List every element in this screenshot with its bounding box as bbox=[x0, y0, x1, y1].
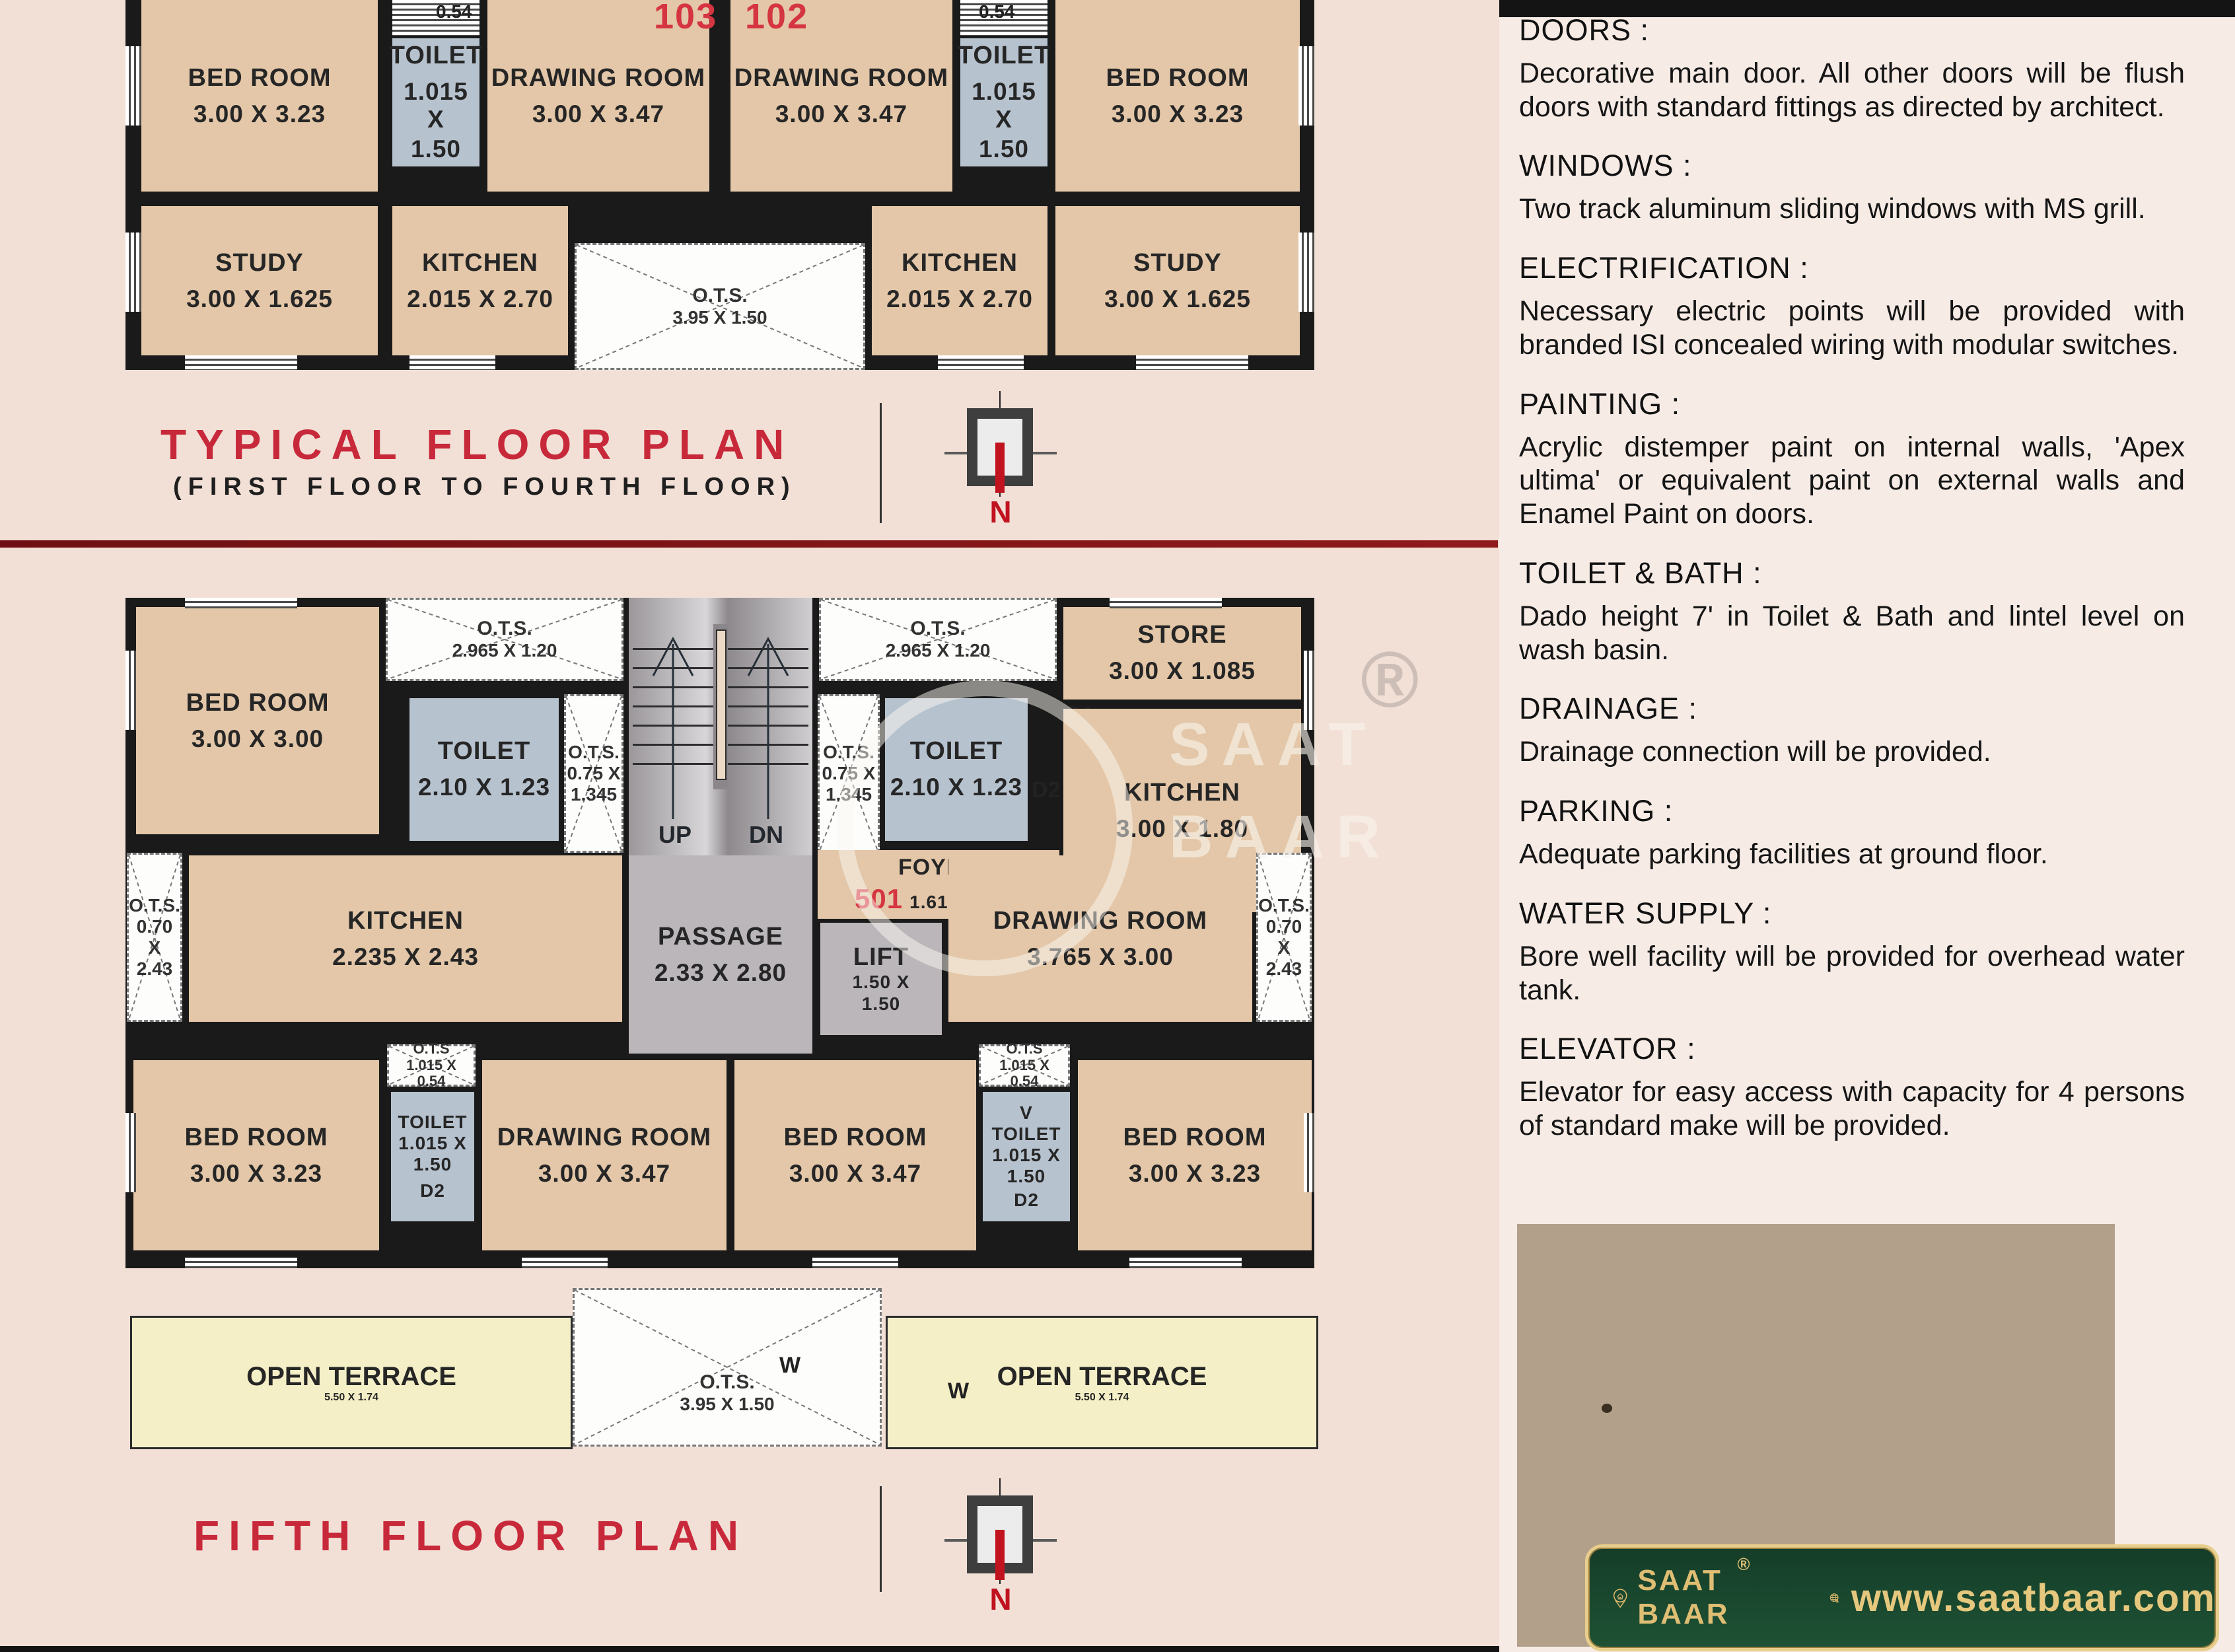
room-dims: 3.765 X 3.00 bbox=[1027, 943, 1174, 971]
room-drawing-mid: DRAWING ROOM 3.765 X 3.00 bbox=[948, 855, 1252, 1022]
room-dims: 2.43 bbox=[1266, 958, 1302, 980]
room-toilet-right: TOILET 1.015 X 1.50 bbox=[960, 38, 1047, 166]
room-dims: 1.50 X bbox=[853, 972, 910, 993]
room-label: O.T.S. bbox=[568, 742, 620, 763]
room-dims: 3.00 X 1.085 bbox=[1109, 657, 1256, 686]
room-label: TOILET bbox=[910, 737, 1003, 766]
room-dims: 0.75 X bbox=[822, 763, 876, 784]
unit-number-103: 103 bbox=[654, 0, 717, 37]
room-label: KITCHEN bbox=[902, 249, 1018, 277]
room-label: LIFT bbox=[853, 943, 909, 972]
room-label: DRAWING ROOM bbox=[491, 64, 705, 92]
spec-body: Drainage connection will be provided. bbox=[1519, 735, 2185, 769]
unit-number-501: 501 bbox=[855, 883, 903, 915]
room-dims: 1.50 bbox=[411, 135, 461, 164]
room-dims: 5.50 X 1.74 bbox=[324, 1392, 378, 1404]
window-mark bbox=[812, 1258, 898, 1268]
room-dims: 3.00 X 1.625 bbox=[1104, 285, 1251, 313]
divider-line bbox=[880, 403, 882, 523]
north-compass-icon: N bbox=[944, 391, 1057, 533]
window-w-label: W bbox=[948, 1379, 969, 1404]
room-label: O.T.S bbox=[1006, 1041, 1042, 1058]
spec-body: Necessary electric points will be provid… bbox=[1519, 295, 2185, 361]
room-label: DRAWING ROOM bbox=[993, 907, 1207, 935]
room-label: O.T.S. bbox=[699, 1371, 754, 1394]
ots-bottom: W W O.T.S. 3.95 X 1.50 bbox=[573, 1288, 882, 1447]
room-toilet-mid-right: TOILET 2.10 X 1.23 bbox=[885, 698, 1028, 841]
room-kitchen-left: KITCHEN 2.015 X 2.70 bbox=[392, 206, 568, 355]
room-dims: 2.10 X 1.23 bbox=[890, 773, 1022, 802]
spec-heading: DOORS : bbox=[1519, 13, 2185, 48]
room-label: DRAWING ROOM bbox=[734, 64, 948, 92]
room-bedroom-right: BED ROOM 3.00 X 3.23 bbox=[1055, 0, 1300, 192]
spec-section-electrification: ELECTRIFICATION : Necessary electric poi… bbox=[1519, 251, 2185, 361]
spec-section-elevator: ELEVATOR : Elevator for easy access with… bbox=[1519, 1032, 2185, 1142]
spec-heading: TOILET & BATH : bbox=[1519, 556, 2185, 591]
room-kitchen-right: KITCHEN 2.015 X 2.70 bbox=[872, 206, 1047, 355]
room-dims: 2.43 bbox=[137, 958, 173, 980]
spec-section-water-supply: WATER SUPPLY : Bore well facility will b… bbox=[1519, 896, 2185, 1007]
spec-heading: ELEVATOR : bbox=[1519, 1032, 2185, 1066]
spec-body: Bore well facility will be provided for … bbox=[1519, 940, 2185, 1007]
room-label: O.T.S bbox=[413, 1041, 449, 1058]
spec-heading: PAINTING : bbox=[1519, 387, 2185, 421]
window-mark bbox=[1298, 46, 1314, 126]
room-dims: 3.00 X 1.80 bbox=[1116, 815, 1248, 843]
room-passage: PASSAGE 2.33 X 2.80 bbox=[629, 855, 812, 1054]
room-dims: 1.015 X bbox=[398, 1133, 467, 1154]
globe-icon bbox=[1829, 1575, 1839, 1621]
window-mark bbox=[185, 355, 297, 370]
room-label: O.T.S. bbox=[1258, 895, 1310, 916]
room-dims: 3.95 X 1.50 bbox=[672, 307, 767, 328]
room-bedroom-bottom-left: BED ROOM 3.00 X 3.23 bbox=[133, 1060, 379, 1250]
website-url: www.saatbaar.com bbox=[1851, 1576, 2216, 1620]
room-toilet-left: TOILET 1.015 X 1.50 bbox=[392, 38, 479, 166]
spec-body: Acrylic distemper paint on internal wall… bbox=[1519, 431, 2185, 531]
room-bedroom-bottom-mid: BED ROOM 3.00 X 3.47 bbox=[734, 1060, 976, 1250]
room-dims: 2.015 X 2.70 bbox=[886, 285, 1033, 313]
room-kitchen-left: KITCHEN 2.235 X 2.43 bbox=[189, 855, 622, 1022]
ots-mid-right: O.T.S. 0.75 X 1.345 bbox=[818, 694, 880, 853]
ots-small-right: O.T.S 1.015 X 0.54 bbox=[979, 1044, 1070, 1087]
room-store: STORE 3.00 X 1.085 bbox=[1063, 607, 1301, 700]
room-dims: 2.965 X 1.20 bbox=[886, 640, 991, 661]
room-label: PASSAGE bbox=[658, 923, 783, 951]
room-dims: 0.54 bbox=[1011, 1073, 1039, 1090]
window-mark bbox=[125, 233, 141, 312]
spec-section-painting: PAINTING : Acrylic distemper paint on in… bbox=[1519, 387, 2185, 531]
room-dims: 3.00 X 3.23 bbox=[190, 1160, 322, 1188]
window-mark bbox=[1129, 1258, 1242, 1268]
room-dims: 2.33 X 2.80 bbox=[655, 959, 787, 987]
ots-far-right: O.T.S. 0.70 X 2.43 bbox=[1256, 853, 1312, 1022]
room-label: O.T.S. bbox=[129, 895, 180, 916]
staircase: UP DN bbox=[629, 598, 812, 855]
room-dims: 1.50 bbox=[413, 1154, 452, 1175]
brand-banner: SAAT® BAAR www.saatbaar.com bbox=[1585, 1544, 2219, 1651]
door-label-d2: D2 bbox=[420, 1180, 445, 1202]
compass-n-label: N bbox=[944, 1581, 1057, 1617]
room-label: O.T.S. bbox=[823, 742, 874, 763]
compass-needle bbox=[995, 1530, 1005, 1580]
room-dims: 2.10 X 1.23 bbox=[418, 773, 550, 802]
registered-icon: ® bbox=[1737, 1555, 1752, 1575]
spec-heading: DRAINAGE : bbox=[1519, 692, 2185, 726]
spec-body: Dado height 7' in Toilet & Bath and lint… bbox=[1519, 600, 2185, 666]
spec-section-drainage: DRAINAGE : Drainage connection will be p… bbox=[1519, 692, 2185, 769]
room-dims: 1.015 X bbox=[999, 1058, 1049, 1074]
room-toilet-bottom-right: V TOILET 1.015 X 1.50 D2 bbox=[983, 1092, 1070, 1221]
room-dims: 0.70 X bbox=[1258, 916, 1310, 958]
stair-arrows-icon bbox=[629, 598, 812, 855]
room-dims: 1.345 bbox=[826, 784, 872, 805]
room-dims: 3.00 X 3.23 bbox=[1112, 100, 1244, 128]
room-study-left: STUDY 3.00 X 1.625 bbox=[141, 206, 378, 355]
spec-section-doors: DOORS : Decorative main door. All other … bbox=[1519, 13, 2185, 124]
spec-section-toilet-bath: TOILET & BATH : Dado height 7' in Toilet… bbox=[1519, 556, 2185, 666]
room-label: O.T.S. bbox=[477, 618, 532, 640]
ots-top-right: O.T.S. 2.965 X 1.20 bbox=[819, 598, 1057, 681]
room-dims: 1.015 X bbox=[992, 1145, 1061, 1166]
room-dims: 1.015 X bbox=[392, 78, 479, 134]
location-pin-house-icon bbox=[1612, 1554, 1628, 1641]
room-dims: 1.50 bbox=[979, 135, 1029, 164]
room-dims: 1.015 X bbox=[406, 1058, 456, 1074]
room-dims: 2.965 X 1.20 bbox=[452, 640, 557, 661]
room-bedroom-top: BED ROOM 3.00 X 3.00 bbox=[136, 607, 379, 834]
room-label: BED ROOM bbox=[186, 689, 330, 717]
room-label: BED ROOM bbox=[188, 64, 332, 92]
room-label: TOILET bbox=[991, 1124, 1061, 1145]
terrace-row: OPEN TERRACE 5.50 X 1.74 W W O.T.S. 3.95… bbox=[129, 1288, 1314, 1447]
brochure-page: BED ROOM 3.00 X 3.23 0.54 TOILET 1.015 X… bbox=[0, 0, 2235, 1652]
room-dims: 1.015 X bbox=[960, 78, 1047, 134]
ots-mid-left: O.T.S. 0.75 X 1.345 bbox=[564, 694, 623, 853]
window-mark bbox=[938, 355, 1024, 370]
room-toilet-mid-left: TOILET 2.10 X 1.23 bbox=[409, 698, 559, 841]
room-bedroom-left: BED ROOM 3.00 X 3.23 bbox=[141, 0, 378, 192]
room-dims: 3.00 X 3.00 bbox=[192, 725, 324, 753]
room-label: TOILET bbox=[398, 1112, 467, 1133]
spec-body: Decorative main door. All other doors wi… bbox=[1519, 57, 2185, 124]
ots-center: O.T.S. 3.95 X 1.50 bbox=[575, 243, 865, 370]
spec-heading: ELECTRIFICATION : bbox=[1519, 251, 2185, 285]
spec-list: DOORS : Decorative main door. All other … bbox=[1519, 9, 2185, 1143]
room-dims: 0.70 X bbox=[129, 916, 180, 958]
ots-dim-partial: 0.54 bbox=[436, 1, 472, 22]
room-label: BED ROOM bbox=[185, 1124, 328, 1152]
brand-name: SAAT® BAAR bbox=[1637, 1564, 1729, 1631]
room-dims: 2.235 X 2.43 bbox=[332, 943, 479, 971]
room-dims: 3.00 X 3.47 bbox=[775, 100, 907, 128]
window-mark bbox=[185, 598, 297, 608]
room-bedroom-bottom-right: BED ROOM 3.00 X 3.23 bbox=[1078, 1060, 1312, 1250]
room-label: STORE bbox=[1137, 621, 1226, 649]
room-label: TOILET bbox=[390, 42, 482, 70]
spec-body: Elevator for easy access with capacity f… bbox=[1519, 1075, 2185, 1142]
window-mark bbox=[1136, 355, 1248, 370]
window-mark bbox=[1304, 651, 1314, 730]
spec-body: Two track aluminum sliding windows with … bbox=[1519, 192, 2185, 226]
spec-heading: WINDOWS : bbox=[1519, 149, 2185, 183]
ots-far-left: O.T.S. 0.70 X 2.43 bbox=[127, 853, 182, 1022]
room-dims: 3.00 X 3.23 bbox=[194, 100, 326, 128]
brand-line1: SAAT bbox=[1637, 1564, 1722, 1597]
room-toilet-bottom-left: TOILET 1.015 X 1.50 D2 bbox=[391, 1092, 474, 1221]
room-dims: 3.00 X 3.47 bbox=[789, 1160, 921, 1188]
room-study-right: STUDY 3.00 X 1.625 bbox=[1055, 206, 1300, 355]
room-label: O.T.S. bbox=[692, 285, 747, 307]
room-label: STUDY bbox=[1133, 249, 1222, 277]
room-dims: 5.50 X 1.74 bbox=[1075, 1392, 1129, 1404]
room-label: TOILET bbox=[958, 42, 1050, 70]
compass-n-label: N bbox=[944, 494, 1057, 530]
room-dims: 1.50 bbox=[1007, 1166, 1046, 1187]
room-label: KITCHEN bbox=[1124, 779, 1240, 807]
room-dims: 3.00 X 3.47 bbox=[532, 100, 664, 128]
window-mark bbox=[1304, 1113, 1314, 1192]
vent-label: V bbox=[1020, 1102, 1033, 1124]
ots-dim-partial: 0.54 bbox=[979, 1, 1015, 22]
bottom-edge-strip bbox=[0, 1646, 1499, 1652]
fifth-floor-plan: BED ROOM 3.00 X 3.00 O.T.S. 2.965 X 1.20… bbox=[125, 598, 1314, 1268]
unit-number-102: 102 bbox=[745, 0, 808, 37]
ots-cross-icon bbox=[575, 1290, 880, 1445]
divider-line bbox=[880, 1486, 882, 1592]
room-label: OPEN TERRACE bbox=[246, 1362, 456, 1392]
room-lift: LIFT 1.50 X 1.50 bbox=[820, 923, 942, 1035]
compass-needle bbox=[995, 443, 1005, 493]
door-label-d2: D2 bbox=[1014, 1190, 1039, 1211]
room-label: TOILET bbox=[438, 737, 530, 766]
specifications-panel: DOORS : Decorative main door. All other … bbox=[1499, 0, 2235, 1652]
room-dims: 3.00 X 3.23 bbox=[1129, 1160, 1261, 1188]
ots-small-left: O.T.S 1.015 X 0.54 bbox=[387, 1044, 476, 1087]
ots-top-left: O.T.S. 2.965 X 1.20 bbox=[386, 598, 623, 681]
room-drawing-bottom: DRAWING ROOM 3.00 X 3.47 bbox=[482, 1060, 727, 1250]
open-terrace-left: OPEN TERRACE 5.50 X 1.74 bbox=[130, 1316, 573, 1449]
room-dims: 3.95 X 1.50 bbox=[680, 1394, 774, 1415]
room-dims: 2.015 X 2.70 bbox=[407, 285, 553, 313]
spec-section-parking: PARKING : Adequate parking facilities at… bbox=[1519, 794, 2185, 871]
window-mark bbox=[125, 651, 136, 730]
room-label: OPEN TERRACE bbox=[997, 1362, 1207, 1392]
room-label: BED ROOM bbox=[1123, 1124, 1267, 1152]
room-dims: 3.00 X 1.625 bbox=[186, 285, 333, 313]
fifth-plan-title: FIFTH FLOOR PLAN bbox=[194, 1511, 748, 1560]
window-mark bbox=[409, 355, 495, 370]
window-mark bbox=[125, 1113, 136, 1192]
room-dims: 1.345 bbox=[571, 784, 617, 805]
room-dims: 0.75 X bbox=[567, 763, 621, 784]
maroon-rule bbox=[0, 540, 1498, 548]
room-label: DRAWING ROOM bbox=[497, 1124, 711, 1152]
door-label-d2: D2 bbox=[1032, 777, 1060, 803]
stairs-up-label: UP bbox=[642, 821, 708, 849]
window-mark bbox=[1110, 598, 1222, 608]
room-dims: 0.54 bbox=[417, 1073, 446, 1090]
room-label: BED ROOM bbox=[784, 1124, 927, 1152]
spec-body: Adequate parking facilities at ground fl… bbox=[1519, 838, 2185, 871]
room-label: BED ROOM bbox=[1106, 64, 1250, 92]
photo-speck bbox=[1602, 1404, 1612, 1413]
room-label: STUDY bbox=[215, 249, 304, 277]
typical-plan-subtitle: (FIRST FLOOR TO FOURTH FLOOR) bbox=[173, 473, 797, 501]
room-label: O.T.S. bbox=[910, 618, 965, 640]
spec-section-windows: WINDOWS : Two track aluminum sliding win… bbox=[1519, 149, 2185, 226]
room-label: KITCHEN bbox=[347, 907, 464, 935]
room-dims: 1.50 bbox=[862, 993, 901, 1015]
window-mark bbox=[522, 1258, 608, 1268]
room-label: KITCHEN bbox=[422, 249, 538, 277]
window-mark bbox=[1298, 233, 1314, 312]
window-mark bbox=[125, 46, 141, 126]
window-w-label: W bbox=[779, 1353, 800, 1379]
typical-plan-title: TYPICAL FLOOR PLAN bbox=[160, 420, 793, 469]
typical-floor-plan: BED ROOM 3.00 X 3.23 0.54 TOILET 1.015 X… bbox=[125, 0, 1314, 370]
stairs-dn-label: DN bbox=[733, 821, 799, 849]
north-compass-icon: N bbox=[944, 1478, 1057, 1620]
window-mark bbox=[185, 1258, 297, 1268]
brand-line2: BAAR bbox=[1637, 1598, 1729, 1632]
watermark-registered-icon: ® bbox=[1361, 634, 1419, 725]
spec-heading: WATER SUPPLY : bbox=[1519, 896, 2185, 931]
spec-heading: PARKING : bbox=[1519, 794, 2185, 828]
room-dims: 3.00 X 3.47 bbox=[538, 1160, 670, 1188]
